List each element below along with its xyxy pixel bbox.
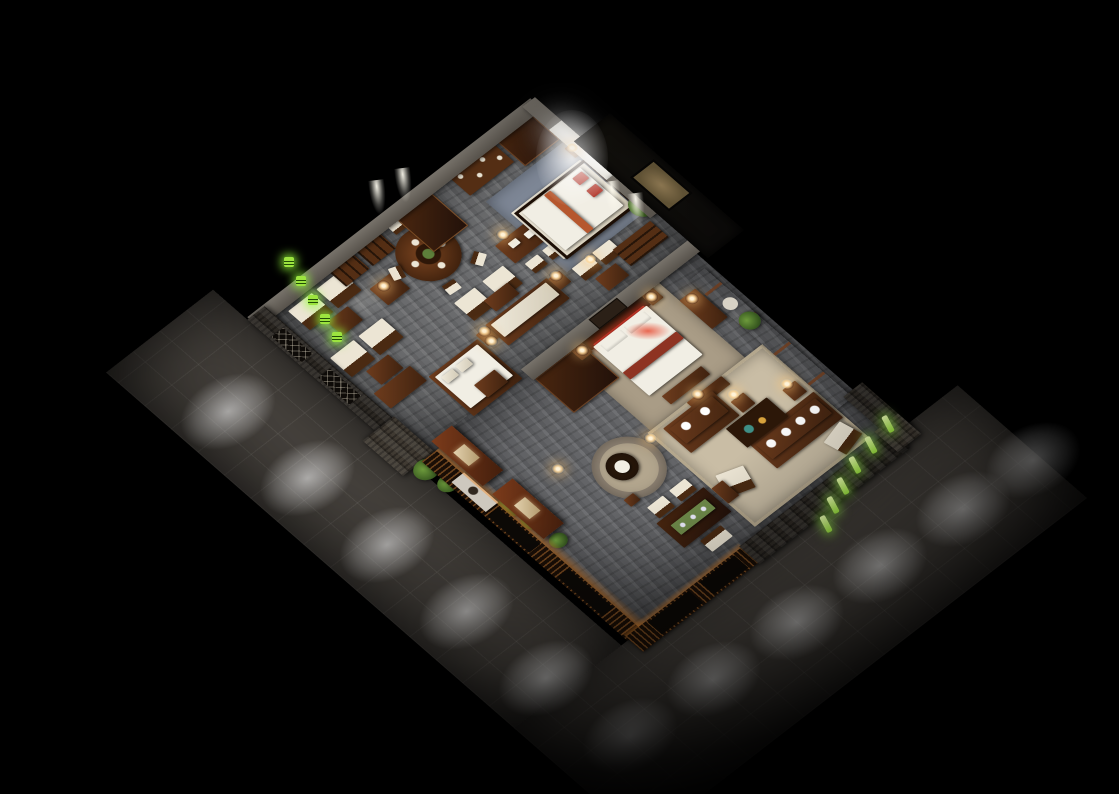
moon-art-circle	[719, 295, 741, 313]
isometric-scene	[252, 61, 956, 642]
partition-inset-bar	[514, 497, 541, 519]
partition-inset-bar	[453, 444, 480, 466]
showroom-render	[0, 0, 1119, 794]
green-character	[284, 257, 294, 267]
